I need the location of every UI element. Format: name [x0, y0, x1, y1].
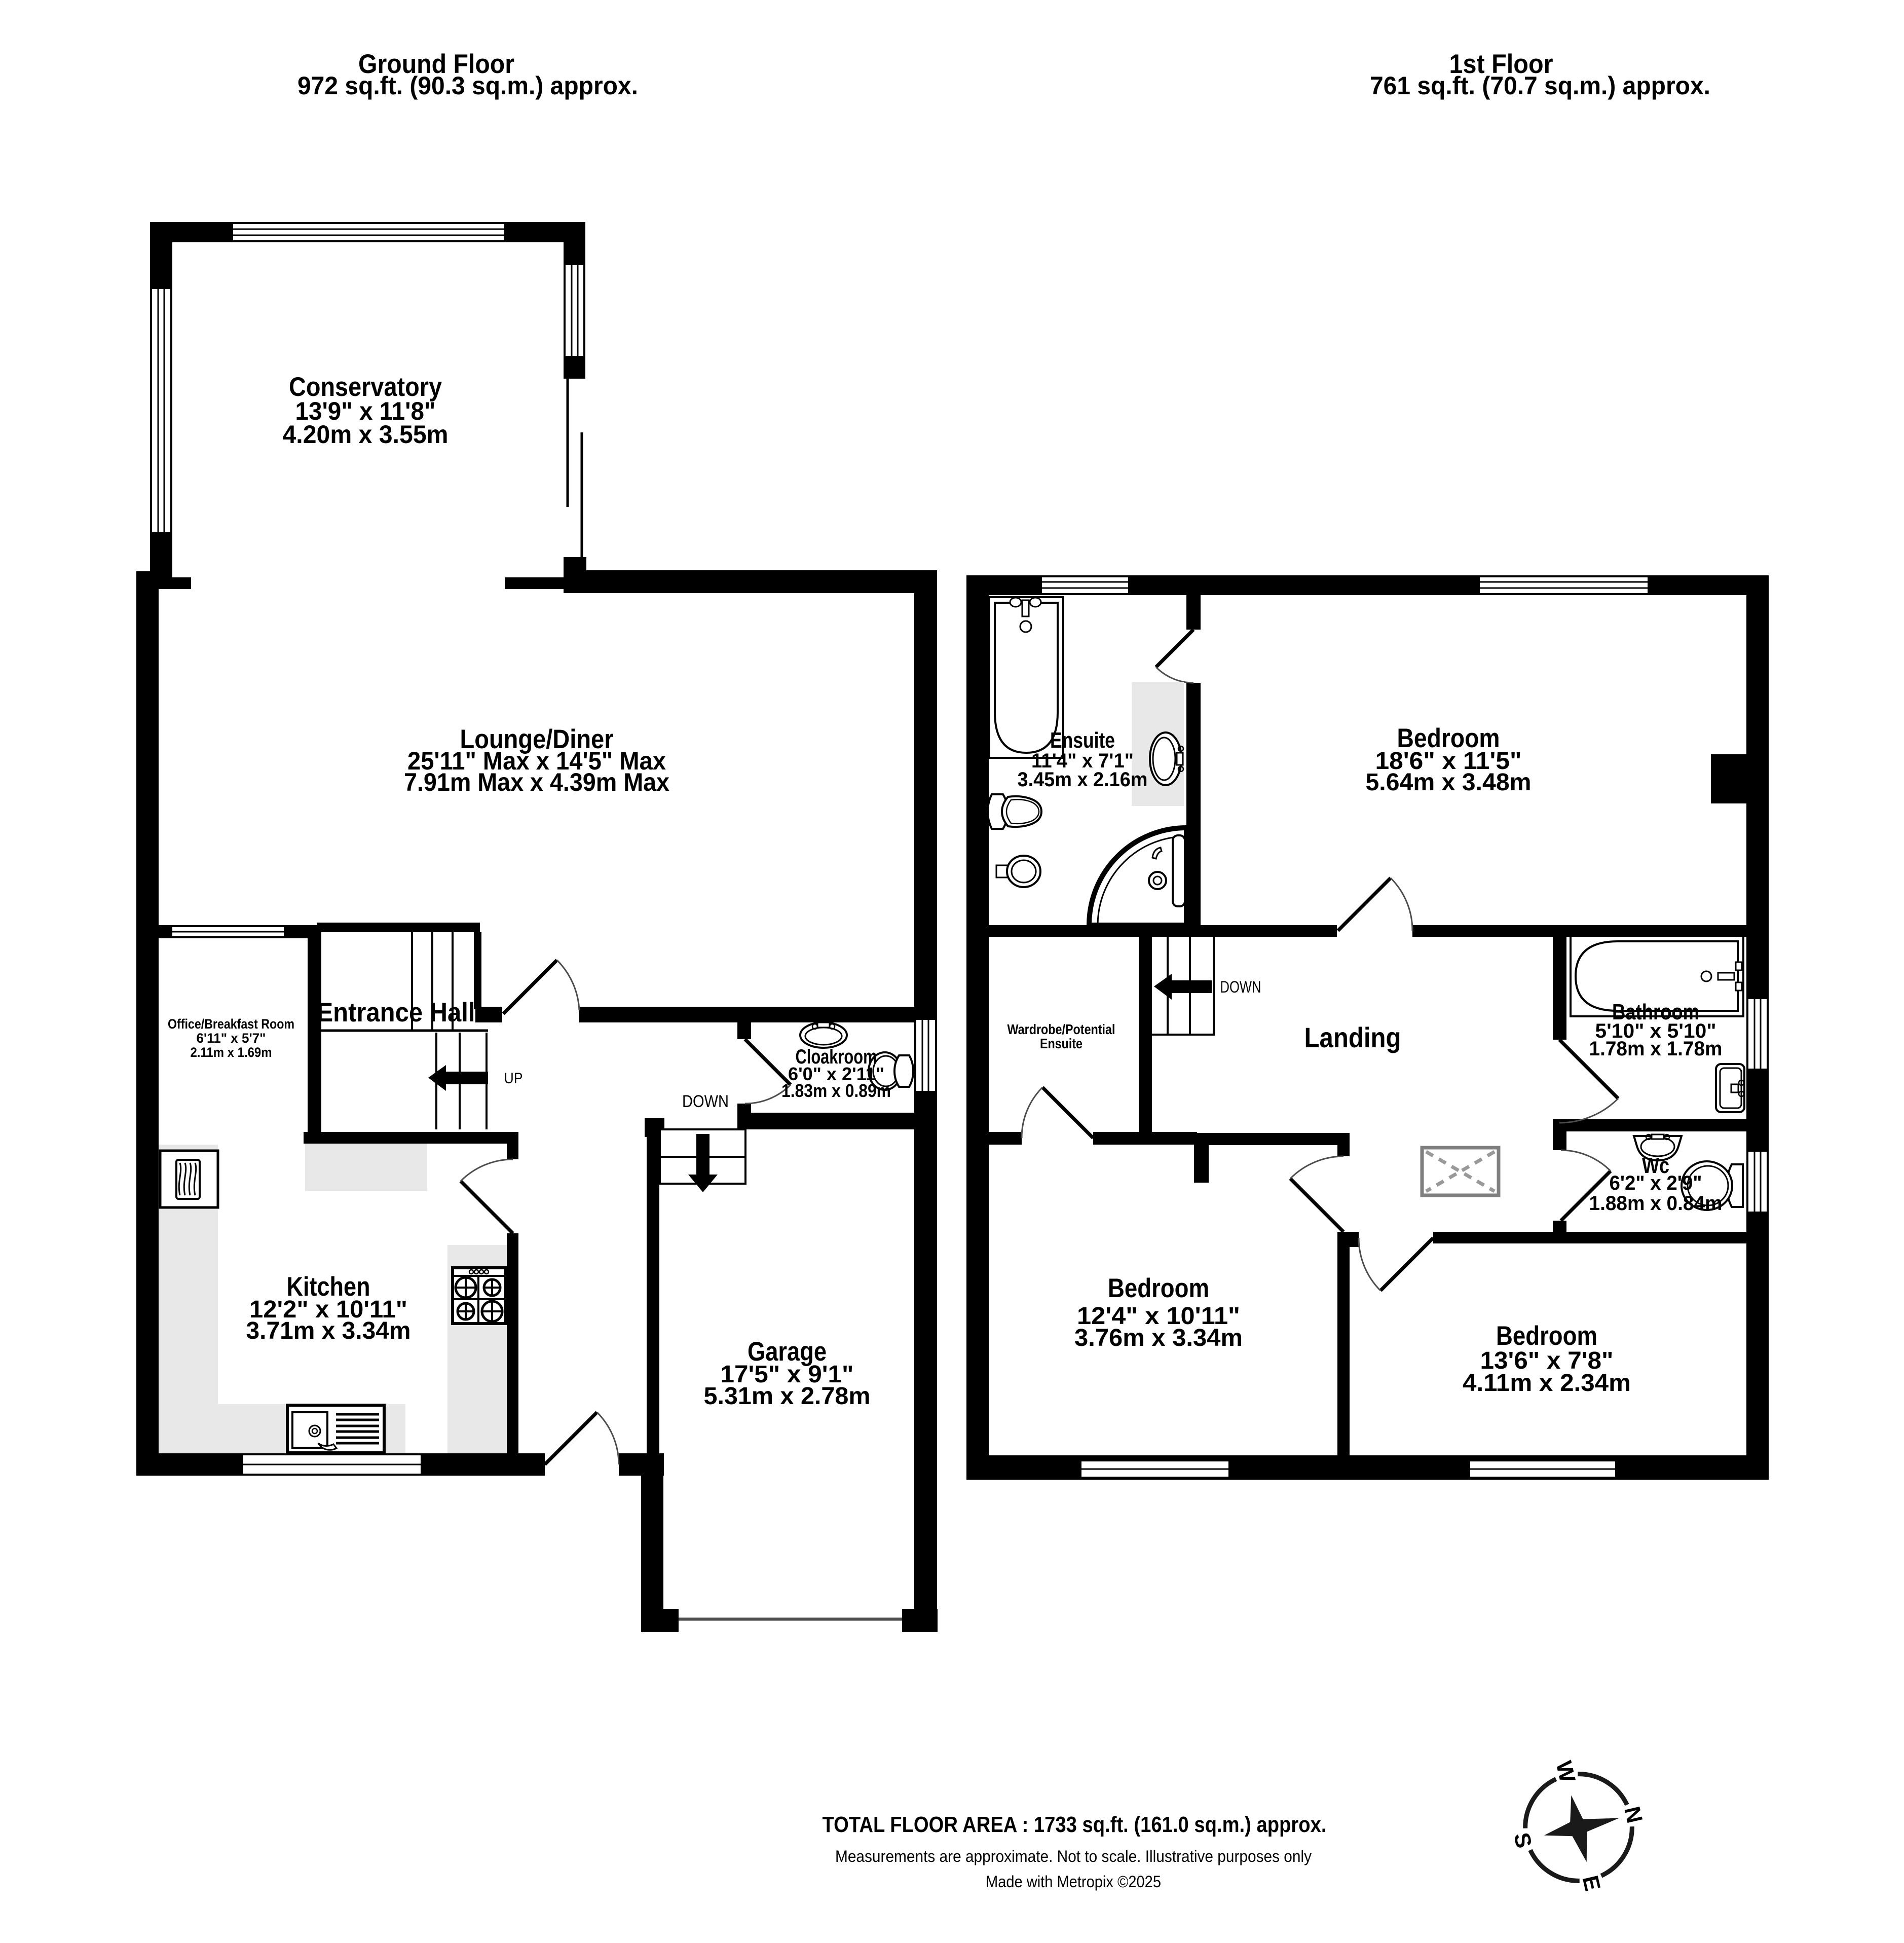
svg-text:1.83m x 0.89m: 1.83m x 0.89m — [781, 1080, 891, 1101]
svg-text:Ensuite: Ensuite — [1040, 1036, 1082, 1051]
svg-text:6'2" x 2'9": 6'2" x 2'9" — [1610, 1172, 1702, 1194]
svg-text:DOWN: DOWN — [1220, 978, 1261, 996]
svg-text:4.11m x 2.34m: 4.11m x 2.34m — [1463, 1370, 1631, 1397]
svg-text:Landing: Landing — [1304, 1021, 1401, 1053]
svg-text:4.20m x 3.55m: 4.20m x 3.55m — [283, 420, 449, 449]
svg-text:Made with Metropix ©2025: Made with Metropix ©2025 — [986, 1873, 1161, 1891]
svg-text:2.11m x 1.69m: 2.11m x 1.69m — [191, 1045, 272, 1060]
svg-text:5.31m x 2.78m: 5.31m x 2.78m — [704, 1383, 871, 1410]
svg-text:5.64m x 3.48m: 5.64m x 3.48m — [1366, 769, 1532, 796]
svg-text:DOWN: DOWN — [682, 1092, 729, 1111]
svg-text:761 sq.ft. (70.7 sq.m.) approx: 761 sq.ft. (70.7 sq.m.) approx. — [1370, 71, 1710, 100]
svg-text:Ensuite: Ensuite — [1050, 728, 1115, 753]
svg-text:Measurements are approximate.: Measurements are approximate. Not to sca… — [835, 1847, 1312, 1865]
svg-text:3.45m x 2.16m: 3.45m x 2.16m — [1018, 768, 1148, 791]
svg-text:3.71m x 3.34m: 3.71m x 3.34m — [246, 1317, 411, 1344]
svg-text:1.88m x 0.84m: 1.88m x 0.84m — [1589, 1192, 1723, 1215]
svg-text:6'11" x 5'7": 6'11" x 5'7" — [197, 1031, 266, 1046]
svg-text:7.91m Max x 4.39m Max: 7.91m Max x 4.39m Max — [404, 768, 669, 796]
svg-text:UP: UP — [504, 1070, 523, 1087]
svg-text:Wardrobe/Potential: Wardrobe/Potential — [1007, 1021, 1115, 1037]
svg-text:TOTAL FLOOR AREA : 1733 sq.ft.: TOTAL FLOOR AREA : 1733 sq.ft. (161.0 sq… — [823, 1812, 1327, 1837]
svg-text:Office/Breakfast Room: Office/Breakfast Room — [168, 1016, 294, 1032]
svg-text:1.78m x 1.78m: 1.78m x 1.78m — [1589, 1038, 1723, 1060]
svg-text:Entrance Hall: Entrance Hall — [317, 998, 475, 1028]
svg-text:Bedroom: Bedroom — [1108, 1273, 1209, 1303]
svg-text:Bedroom: Bedroom — [1496, 1321, 1597, 1351]
svg-text:972 sq.ft. (90.3 sq.m.) approx: 972 sq.ft. (90.3 sq.m.) approx. — [297, 71, 638, 100]
svg-text:3.76m x 3.34m: 3.76m x 3.34m — [1074, 1325, 1243, 1351]
